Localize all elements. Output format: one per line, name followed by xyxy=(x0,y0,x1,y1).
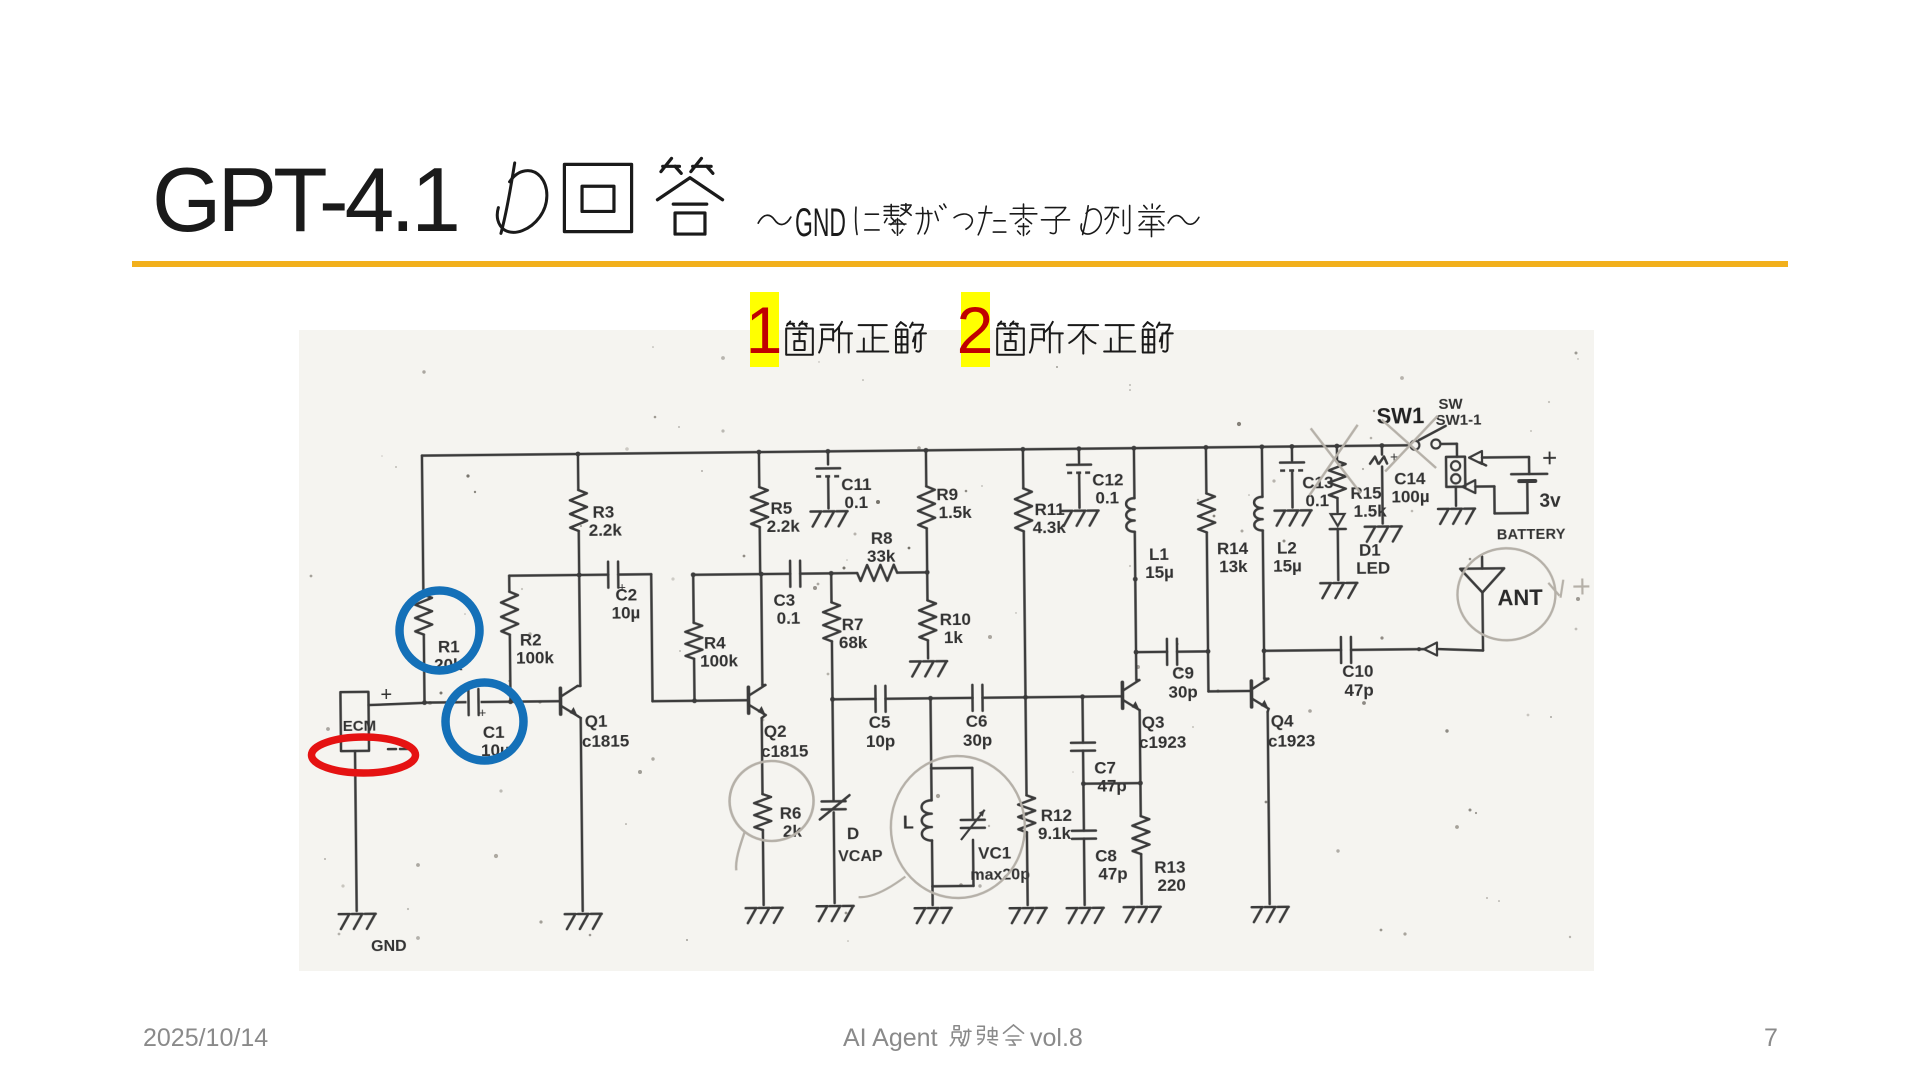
svg-text:0.1: 0.1 xyxy=(1095,488,1119,507)
svg-text:c1815: c1815 xyxy=(761,742,808,761)
svg-text:C14: C14 xyxy=(1394,469,1426,488)
svg-text:R4: R4 xyxy=(704,633,726,652)
svg-text:SW: SW xyxy=(1438,396,1463,413)
svg-text:D1: D1 xyxy=(1359,541,1381,560)
svg-text:30p: 30p xyxy=(963,731,992,750)
svg-text:2.2k: 2.2k xyxy=(767,517,801,536)
svg-text:0.1: 0.1 xyxy=(844,493,868,512)
svg-text:9.1k: 9.1k xyxy=(1038,824,1072,843)
svg-text:2025/10/14: 2025/10/14 xyxy=(143,1024,268,1052)
svg-text:3v: 3v xyxy=(1539,491,1561,512)
svg-text:68k: 68k xyxy=(839,633,868,652)
svg-text:Q4: Q4 xyxy=(1271,712,1294,731)
svg-text:30p: 30p xyxy=(1168,683,1197,702)
svg-text:10p: 10p xyxy=(866,732,895,751)
svg-text:C9: C9 xyxy=(1172,664,1194,683)
svg-text:R10: R10 xyxy=(940,610,971,629)
svg-text:4.3k: 4.3k xyxy=(1033,518,1067,537)
svg-text:1k: 1k xyxy=(944,628,964,647)
svg-text:VC1: VC1 xyxy=(978,843,1011,862)
svg-text:R3: R3 xyxy=(592,503,614,522)
svg-text:C6: C6 xyxy=(966,712,988,731)
svg-text:C7: C7 xyxy=(1094,758,1116,777)
svg-text:0.1: 0.1 xyxy=(777,609,801,628)
svg-text:R5: R5 xyxy=(770,499,792,518)
svg-text:R12: R12 xyxy=(1041,806,1072,825)
svg-text:100µ: 100µ xyxy=(1391,487,1429,506)
svg-text:+: + xyxy=(1542,443,1558,473)
svg-text:L: L xyxy=(903,812,914,832)
svg-text:GND: GND xyxy=(371,938,407,955)
svg-text:47p: 47p xyxy=(1097,776,1126,795)
svg-text:R8: R8 xyxy=(871,529,893,548)
svg-text:LED: LED xyxy=(1356,558,1390,577)
svg-text:ECM: ECM xyxy=(343,718,377,735)
svg-text:c1923: c1923 xyxy=(1268,731,1315,750)
svg-text:VCAP: VCAP xyxy=(838,848,883,865)
svg-text:C11: C11 xyxy=(841,475,871,494)
svg-text:SW1-1: SW1-1 xyxy=(1436,412,1482,429)
svg-text:R11: R11 xyxy=(1034,500,1064,519)
svg-text:10µ: 10µ xyxy=(611,603,640,622)
svg-text:C5: C5 xyxy=(869,713,891,732)
svg-text:vol.8: vol.8 xyxy=(1030,1024,1083,1052)
svg-text:R13: R13 xyxy=(1154,858,1185,877)
svg-text:C12: C12 xyxy=(1092,470,1123,489)
svg-text:AI Agent: AI Agent xyxy=(843,1024,938,1052)
svg-text:R1: R1 xyxy=(438,637,460,656)
svg-text:SW1: SW1 xyxy=(1376,403,1424,428)
svg-text:7: 7 xyxy=(1764,1024,1778,1052)
svg-text:33k: 33k xyxy=(867,547,896,566)
svg-text:15µ: 15µ xyxy=(1273,556,1302,575)
svg-text:47p: 47p xyxy=(1098,864,1127,883)
svg-text:GPT-4.1: GPT-4.1 xyxy=(152,150,457,251)
svg-text:1: 1 xyxy=(746,293,783,367)
svg-text:Q1: Q1 xyxy=(585,712,608,731)
svg-text:220: 220 xyxy=(1157,876,1186,895)
svg-text:Q2: Q2 xyxy=(764,722,787,741)
svg-text:D: D xyxy=(847,824,859,843)
svg-text:R7: R7 xyxy=(842,615,864,634)
svg-text:C8: C8 xyxy=(1095,846,1117,865)
svg-text:C3: C3 xyxy=(773,591,795,610)
svg-text:2.2k: 2.2k xyxy=(589,521,623,540)
svg-text:BATTERY: BATTERY xyxy=(1497,527,1566,544)
svg-text:1.5k: 1.5k xyxy=(938,503,972,522)
svg-text:C1: C1 xyxy=(483,723,505,742)
svg-text:L1: L1 xyxy=(1149,545,1169,564)
svg-text:13k: 13k xyxy=(1219,557,1248,576)
svg-text:15µ: 15µ xyxy=(1145,563,1174,582)
svg-text:GND: GND xyxy=(795,201,846,245)
svg-text:R2: R2 xyxy=(520,630,542,649)
svg-text:Q3: Q3 xyxy=(1142,713,1165,732)
svg-text:C10: C10 xyxy=(1342,662,1373,681)
svg-text:R9: R9 xyxy=(936,485,958,504)
svg-text:ANT: ANT xyxy=(1497,585,1543,610)
svg-text:47p: 47p xyxy=(1344,681,1373,700)
svg-text:+: + xyxy=(380,684,392,706)
svg-text:R14: R14 xyxy=(1217,539,1249,558)
svg-text:100k: 100k xyxy=(700,651,739,670)
svg-text:C2: C2 xyxy=(615,585,637,604)
svg-text:100k: 100k xyxy=(516,648,555,667)
svg-text:c1923: c1923 xyxy=(1139,733,1186,752)
svg-text:c1815: c1815 xyxy=(582,731,629,750)
svg-text:L2: L2 xyxy=(1277,538,1297,557)
svg-text:2: 2 xyxy=(957,293,994,367)
svg-text:R6: R6 xyxy=(780,804,802,823)
svg-text:+: + xyxy=(479,705,487,720)
